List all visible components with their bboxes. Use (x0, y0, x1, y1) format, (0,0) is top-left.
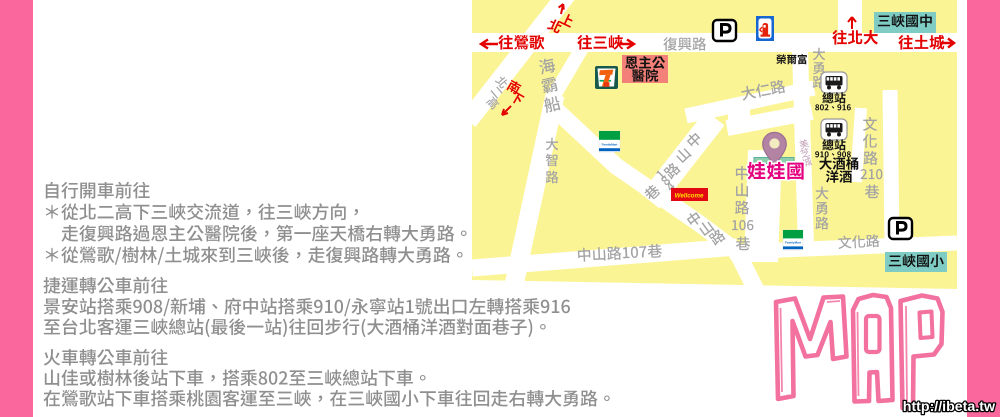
svg-text:http://ibeta.tw: http://ibeta.tw (903, 399, 996, 415)
svg-text:FamilyMart: FamilyMart (785, 241, 801, 245)
svg-text:Wellcome: Wellcome (675, 193, 704, 200)
svg-text:FamilyMart: FamilyMart (602, 142, 618, 146)
